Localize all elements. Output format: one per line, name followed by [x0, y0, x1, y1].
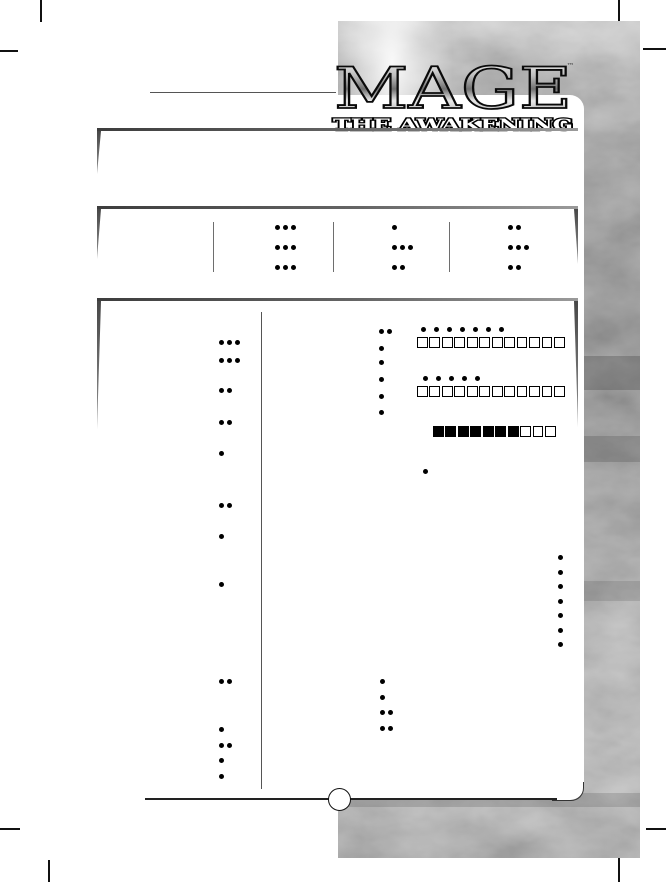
filled-dot — [227, 420, 232, 425]
filled-dot — [434, 327, 439, 332]
filled-dot — [275, 225, 280, 230]
empty-checkbox — [517, 386, 528, 397]
arcana-dots — [379, 360, 384, 365]
crop-mark — [0, 50, 18, 52]
attribute-dots — [392, 265, 405, 270]
filled-dot — [219, 758, 224, 763]
filled-dot — [227, 503, 232, 508]
attributes-divider — [333, 222, 334, 272]
filled-dot — [447, 327, 452, 332]
arcana-dots — [379, 410, 384, 415]
skill-dots — [219, 451, 224, 456]
skill-dots — [219, 420, 232, 425]
empty-checkbox — [479, 386, 490, 397]
filled-dot — [283, 225, 288, 230]
filled-dot — [558, 599, 563, 604]
filled-dot — [219, 774, 224, 779]
filled-checkbox — [445, 426, 456, 437]
scanned-character-sheet: MAGE ™ THE AWAKENING — [0, 0, 666, 882]
filled-dot — [219, 743, 224, 748]
empty-checkbox — [479, 337, 490, 348]
filled-checkbox — [495, 426, 506, 437]
skill-dots — [219, 727, 224, 732]
filled-dot — [388, 710, 393, 715]
empty-checkbox — [429, 337, 440, 348]
merit-dots — [380, 695, 385, 700]
attribute-dots — [275, 245, 296, 250]
filled-dot — [275, 245, 280, 250]
filled-dot — [558, 584, 563, 589]
filled-dot — [558, 642, 563, 647]
skill-dots — [219, 758, 224, 763]
crop-mark — [0, 828, 20, 830]
crop-mark — [646, 828, 666, 830]
skill-dots — [219, 534, 224, 539]
attribute-dots — [275, 225, 296, 230]
filled-dot — [380, 679, 385, 684]
header-box-top-border — [97, 128, 578, 131]
empty-checkbox — [545, 426, 556, 437]
empty-checkbox — [454, 386, 465, 397]
filled-dot — [227, 358, 232, 363]
empty-checkbox — [467, 337, 478, 348]
filled-dot — [219, 340, 224, 345]
filled-dot — [524, 245, 529, 250]
empty-checkbox — [429, 386, 440, 397]
filled-dot — [379, 377, 384, 382]
crop-mark — [48, 860, 50, 882]
filled-dot — [508, 225, 513, 230]
filled-dot — [219, 420, 224, 425]
filled-dot — [508, 265, 513, 270]
empty-checkbox — [517, 337, 528, 348]
filled-dot — [508, 245, 513, 250]
empty-checkbox — [542, 386, 553, 397]
gnosis-dots — [423, 469, 428, 474]
empty-checkbox — [520, 426, 531, 437]
filled-dot — [499, 327, 504, 332]
filled-dot — [379, 329, 384, 334]
filled-dot — [219, 534, 224, 539]
character-sheet-body — [0, 95, 584, 800]
crop-mark — [40, 0, 42, 22]
empty-checkbox — [529, 386, 540, 397]
filled-dot — [379, 360, 384, 365]
filled-dot — [558, 570, 563, 575]
arcana-dots — [379, 394, 384, 399]
empty-checkbox — [417, 337, 428, 348]
attribute-dots — [392, 225, 397, 230]
crop-mark — [643, 48, 666, 50]
empty-checkbox — [492, 386, 503, 397]
filled-dot — [219, 358, 224, 363]
filled-dot — [516, 265, 521, 270]
empty-checkbox — [529, 337, 540, 348]
filled-dot — [291, 245, 296, 250]
empty-checkbox — [442, 337, 453, 348]
filled-dot — [388, 726, 393, 731]
logo-trademark: ™ — [567, 62, 574, 70]
wisdom-dots — [558, 555, 563, 647]
skill-dots — [219, 340, 240, 345]
empty-checkbox — [533, 426, 544, 437]
filled-dot — [219, 388, 224, 393]
filled-dot — [219, 727, 224, 732]
filled-dot — [460, 327, 465, 332]
filled-dot — [235, 358, 240, 363]
filled-dot — [227, 388, 232, 393]
filled-dot — [379, 346, 384, 351]
filled-dot — [219, 582, 224, 587]
filled-checkbox — [433, 426, 444, 437]
filled-dot — [379, 394, 384, 399]
filled-dot — [400, 265, 405, 270]
filled-dot — [219, 451, 224, 456]
skill-dots — [219, 358, 240, 363]
health-boxes — [417, 337, 565, 348]
header-rule — [150, 92, 336, 93]
health-dots — [421, 327, 504, 332]
crop-mark — [618, 0, 620, 21]
filled-checkbox — [483, 426, 494, 437]
skills-column-divider — [261, 312, 262, 789]
willpower-boxes — [417, 386, 565, 397]
filled-dot — [408, 245, 413, 250]
filled-dot — [558, 613, 563, 618]
empty-checkbox — [417, 386, 428, 397]
filled-dot — [387, 329, 392, 334]
filled-dot — [227, 679, 232, 684]
page-margin-white — [0, 0, 338, 96]
attribute-dots — [508, 265, 521, 270]
arcana-dots — [379, 329, 392, 334]
filled-dot — [227, 340, 232, 345]
merit-dots — [380, 710, 393, 715]
attribute-dots — [508, 245, 529, 250]
attribute-dots — [392, 245, 413, 250]
filled-dot — [436, 376, 441, 381]
filled-dot — [219, 679, 224, 684]
merit-dots — [380, 726, 393, 731]
filled-checkbox — [458, 426, 469, 437]
filled-dot — [449, 376, 454, 381]
filled-dot — [392, 225, 397, 230]
empty-checkbox — [504, 337, 515, 348]
empty-checkbox — [554, 386, 565, 397]
filled-dot — [558, 555, 563, 560]
filled-dot — [291, 225, 296, 230]
filled-dot — [558, 628, 563, 633]
filled-checkbox — [508, 426, 519, 437]
empty-checkbox — [467, 386, 478, 397]
filled-dot — [275, 265, 280, 270]
arcana-dots — [379, 346, 384, 351]
attributes-divider — [213, 222, 214, 272]
filled-dot — [291, 265, 296, 270]
empty-checkbox — [492, 337, 503, 348]
filled-dot — [516, 245, 521, 250]
filled-dot — [462, 376, 467, 381]
skill-dots — [219, 503, 232, 508]
footer-rule — [145, 798, 557, 800]
filled-dot — [283, 245, 288, 250]
logo-title: MAGE — [334, 56, 572, 122]
footer-circle-ornament — [328, 788, 351, 811]
filled-dot — [400, 245, 405, 250]
filled-dot — [380, 695, 385, 700]
filled-dot — [516, 225, 521, 230]
filled-dot — [423, 469, 428, 474]
filled-dot — [219, 503, 224, 508]
attribute-dots — [275, 265, 296, 270]
filled-dot — [380, 726, 385, 731]
willpower-dots — [423, 376, 480, 381]
filled-dot — [421, 327, 426, 332]
skill-dots — [219, 774, 224, 779]
mage-the-awakening-logo: MAGE ™ THE AWAKENING — [326, 56, 580, 138]
skill-dots — [219, 679, 232, 684]
empty-checkbox — [442, 386, 453, 397]
filled-dot — [283, 265, 288, 270]
main-box-top-border — [97, 298, 578, 301]
skill-dots — [219, 388, 232, 393]
empty-checkbox — [504, 386, 515, 397]
attribute-dots — [508, 225, 521, 230]
filled-dot — [235, 340, 240, 345]
mana-boxes — [433, 426, 556, 437]
filled-dot — [486, 327, 491, 332]
filled-dot — [380, 710, 385, 715]
skill-dots — [219, 743, 232, 748]
empty-checkbox — [554, 337, 565, 348]
skill-dots — [219, 582, 224, 587]
empty-checkbox — [454, 337, 465, 348]
empty-checkbox — [542, 337, 553, 348]
arcana-dots — [379, 377, 384, 382]
attributes-divider — [449, 222, 450, 272]
filled-dot — [392, 245, 397, 250]
attributes-box-top-border — [97, 206, 578, 209]
filled-dot — [227, 743, 232, 748]
filled-dot — [473, 327, 478, 332]
filled-dot — [379, 410, 384, 415]
logo-subtitle: THE AWAKENING — [333, 115, 573, 134]
filled-checkbox — [470, 426, 481, 437]
filled-dot — [423, 376, 428, 381]
merit-dots — [380, 679, 385, 684]
filled-dot — [475, 376, 480, 381]
crop-mark — [618, 858, 620, 882]
filled-dot — [392, 265, 397, 270]
